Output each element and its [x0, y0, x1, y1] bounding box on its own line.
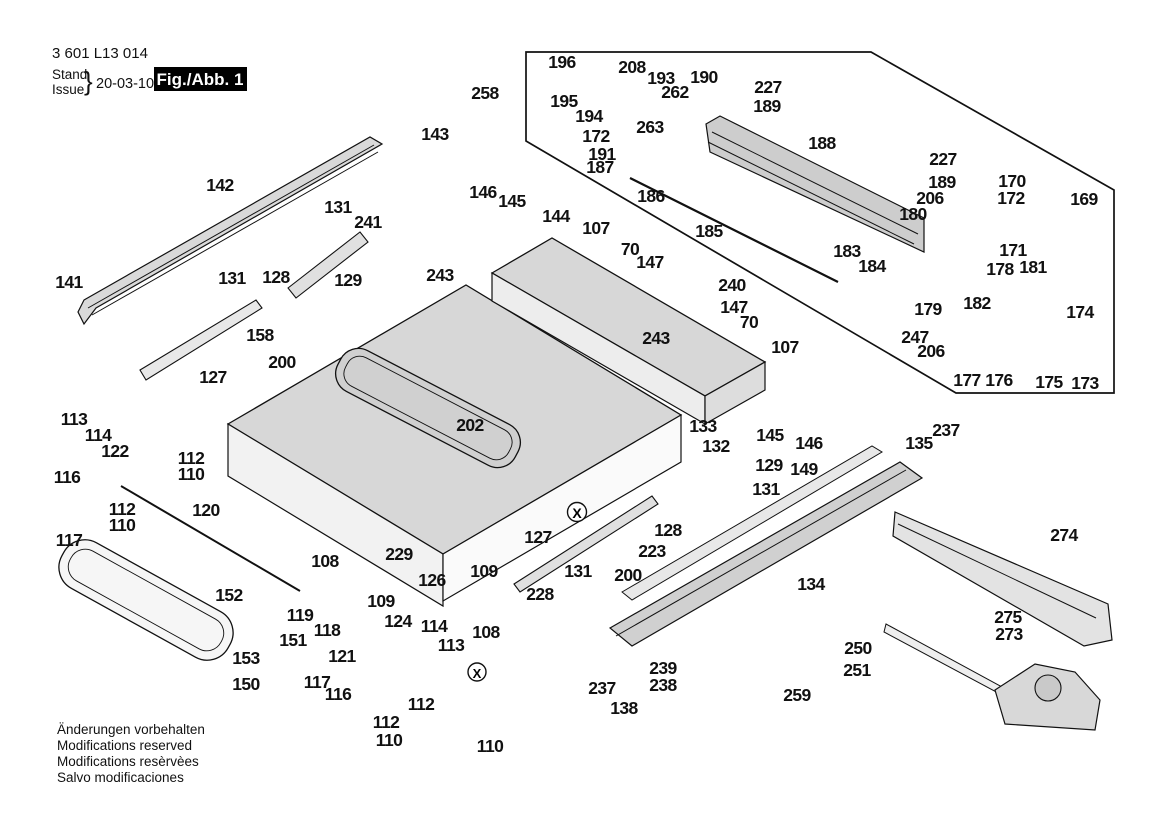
svg-text:227: 227	[929, 149, 956, 169]
svg-text:237: 237	[588, 678, 615, 698]
svg-text:120: 120	[192, 500, 220, 520]
svg-text:127: 127	[524, 527, 551, 547]
svg-text:250: 250	[844, 638, 872, 658]
svg-text:177: 177	[953, 370, 980, 390]
svg-text:251: 251	[843, 660, 871, 680]
svg-text:20-03-10: 20-03-10	[96, 76, 154, 92]
svg-text:127: 127	[199, 367, 226, 387]
svg-text:Modifications resèrvèes: Modifications resèrvèes	[57, 754, 199, 769]
svg-text:190: 190	[690, 67, 718, 87]
svg-text:179: 179	[914, 299, 942, 319]
svg-text:110: 110	[109, 515, 136, 535]
svg-text:144: 144	[542, 206, 570, 226]
svg-text:202: 202	[456, 415, 484, 435]
svg-text:Fig./Abb. 1: Fig./Abb. 1	[157, 70, 244, 89]
svg-text:128: 128	[262, 267, 290, 287]
svg-text:107: 107	[771, 337, 798, 357]
svg-text:128: 128	[654, 520, 682, 540]
svg-text:108: 108	[472, 622, 500, 642]
svg-text:Stand: Stand	[52, 67, 87, 82]
svg-text:116: 116	[325, 684, 352, 704]
svg-text:240: 240	[718, 275, 746, 295]
svg-text:223: 223	[638, 541, 666, 561]
svg-text:109: 109	[367, 591, 395, 611]
svg-text:172: 172	[997, 188, 1025, 208]
svg-text:110: 110	[178, 464, 205, 484]
svg-text:259: 259	[783, 685, 811, 705]
svg-text:Modifications reserved: Modifications reserved	[57, 738, 192, 753]
svg-text:185: 185	[695, 221, 723, 241]
svg-text:134: 134	[797, 574, 825, 594]
svg-text:131: 131	[218, 268, 246, 288]
svg-text:}: }	[84, 66, 93, 96]
svg-text:158: 158	[246, 325, 274, 345]
svg-text:243: 243	[426, 265, 454, 285]
svg-text:149: 149	[790, 459, 818, 479]
svg-text:175: 175	[1035, 372, 1063, 392]
svg-text:133: 133	[689, 416, 717, 436]
svg-text:186: 186	[637, 186, 665, 206]
svg-text:112: 112	[408, 694, 435, 714]
svg-text:227: 227	[754, 77, 781, 97]
svg-text:135: 135	[905, 433, 933, 453]
svg-text:117: 117	[56, 530, 82, 550]
svg-text:229: 229	[385, 544, 413, 564]
svg-text:189: 189	[753, 96, 781, 116]
svg-text:182: 182	[963, 293, 991, 313]
svg-text:143: 143	[421, 124, 449, 144]
svg-text:208: 208	[618, 57, 646, 77]
svg-text:131: 131	[752, 479, 780, 499]
svg-text:178: 178	[986, 259, 1014, 279]
svg-text:152: 152	[215, 585, 243, 605]
svg-text:200: 200	[268, 352, 296, 372]
svg-text:X: X	[473, 666, 482, 681]
svg-text:138: 138	[610, 698, 638, 718]
svg-text:194: 194	[575, 106, 603, 126]
svg-text:169: 169	[1070, 189, 1098, 209]
svg-text:151: 151	[279, 630, 307, 650]
svg-text:174: 174	[1066, 302, 1094, 322]
svg-text:119: 119	[287, 605, 314, 625]
svg-text:122: 122	[101, 441, 129, 461]
svg-text:200: 200	[614, 565, 642, 585]
svg-text:206: 206	[917, 341, 945, 361]
svg-text:Issue: Issue	[52, 82, 84, 97]
svg-text:238: 238	[649, 675, 677, 695]
svg-text:188: 188	[808, 133, 836, 153]
svg-text:118: 118	[314, 620, 341, 640]
svg-text:X: X	[572, 505, 582, 521]
svg-text:110: 110	[477, 736, 504, 756]
svg-text:129: 129	[334, 270, 362, 290]
svg-text:187: 187	[586, 157, 613, 177]
svg-text:131: 131	[324, 197, 352, 217]
svg-text:116: 116	[54, 467, 81, 487]
svg-text:147: 147	[636, 252, 663, 272]
svg-text:263: 263	[636, 117, 664, 137]
svg-text:129: 129	[755, 455, 783, 475]
svg-text:108: 108	[311, 551, 339, 571]
svg-text:258: 258	[471, 83, 499, 103]
svg-text:273: 273	[995, 624, 1023, 644]
svg-text:180: 180	[899, 204, 927, 224]
svg-text:121: 121	[328, 646, 356, 666]
svg-text:Salvo modificaciones: Salvo modificaciones	[57, 770, 184, 785]
svg-text:172: 172	[582, 126, 610, 146]
svg-text:173: 173	[1071, 373, 1099, 393]
svg-text:145: 145	[498, 191, 526, 211]
svg-text:Änderungen vorbehalten: Änderungen vorbehalten	[57, 722, 205, 737]
svg-text:241: 241	[354, 212, 382, 232]
svg-text:126: 126	[418, 570, 446, 590]
svg-text:184: 184	[858, 256, 886, 276]
svg-text:3 601 L13 014: 3 601 L13 014	[52, 45, 148, 62]
svg-text:107: 107	[582, 218, 609, 238]
svg-text:112: 112	[373, 712, 400, 732]
svg-text:142: 142	[206, 175, 234, 195]
svg-text:153: 153	[232, 648, 260, 668]
svg-text:70: 70	[740, 312, 759, 332]
svg-text:262: 262	[661, 82, 689, 102]
svg-text:113: 113	[438, 635, 465, 655]
svg-text:243: 243	[642, 328, 670, 348]
svg-text:109: 109	[470, 561, 498, 581]
svg-text:132: 132	[702, 436, 730, 456]
svg-text:110: 110	[376, 730, 403, 750]
svg-text:237: 237	[932, 420, 959, 440]
svg-text:274: 274	[1050, 525, 1078, 545]
svg-text:228: 228	[526, 584, 554, 604]
svg-text:150: 150	[232, 674, 260, 694]
svg-text:146: 146	[795, 433, 823, 453]
svg-text:176: 176	[985, 370, 1013, 390]
svg-text:141: 141	[55, 272, 83, 292]
svg-text:131: 131	[564, 561, 592, 581]
svg-text:146: 146	[469, 182, 497, 202]
svg-text:145: 145	[756, 425, 784, 445]
svg-text:124: 124	[384, 611, 412, 631]
svg-text:114: 114	[421, 616, 448, 636]
svg-text:196: 196	[548, 52, 576, 72]
svg-text:181: 181	[1019, 257, 1047, 277]
